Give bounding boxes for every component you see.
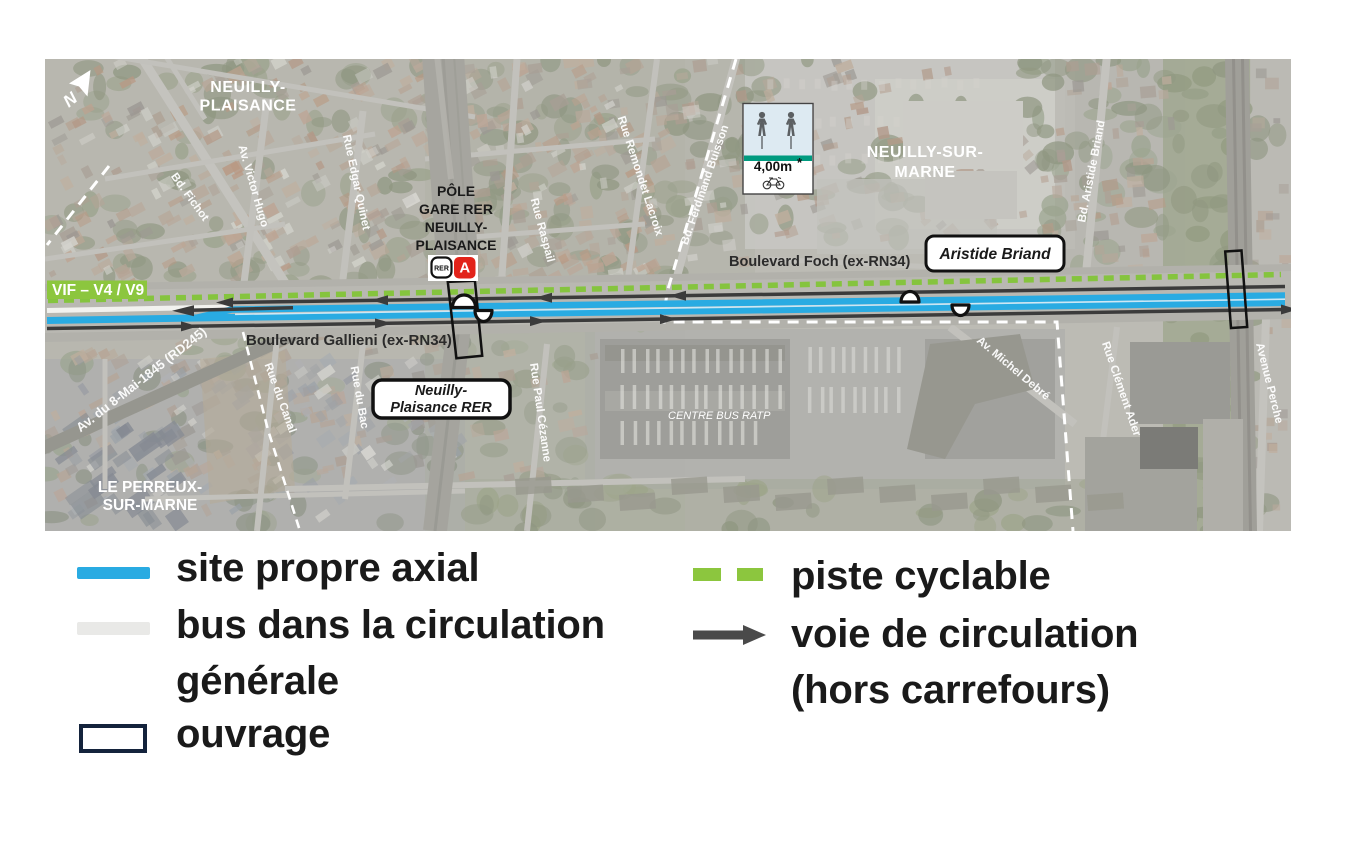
- svg-text:Plaisance RER: Plaisance RER: [390, 400, 492, 416]
- svg-text:PLAISANCE: PLAISANCE: [200, 98, 297, 115]
- svg-text:4,00m: 4,00m: [754, 159, 792, 174]
- svg-text:Neuilly-: Neuilly-: [415, 383, 468, 399]
- svg-text:Boulevard Foch (ex-RN34): Boulevard Foch (ex-RN34): [729, 254, 910, 270]
- svg-text:MARNE: MARNE: [894, 164, 955, 181]
- svg-text:NEUILLY-: NEUILLY-: [210, 79, 285, 96]
- svg-text:SUR-MARNE: SUR-MARNE: [103, 497, 198, 514]
- svg-text:Boulevard Gallieni (ex-RN34): Boulevard Gallieni (ex-RN34): [246, 332, 452, 349]
- svg-text:LE PERREUX-: LE PERREUX-: [98, 479, 202, 496]
- svg-text:NEUILLY-SUR-: NEUILLY-SUR-: [867, 144, 984, 161]
- svg-text:RER: RER: [434, 266, 449, 273]
- svg-text:GARE RER: GARE RER: [419, 201, 493, 217]
- svg-text:VIF – V4 / V9: VIF – V4 / V9: [52, 282, 145, 299]
- svg-text:CENTRE BUS RATP: CENTRE BUS RATP: [668, 410, 771, 422]
- svg-text:NEUILLY-: NEUILLY-: [425, 219, 488, 235]
- svg-text:PLAISANCE: PLAISANCE: [416, 237, 497, 253]
- svg-text:PÔLE: PÔLE: [437, 182, 475, 199]
- svg-text:Aristide Briand: Aristide Briand: [938, 246, 1051, 263]
- svg-text:A: A: [459, 260, 470, 277]
